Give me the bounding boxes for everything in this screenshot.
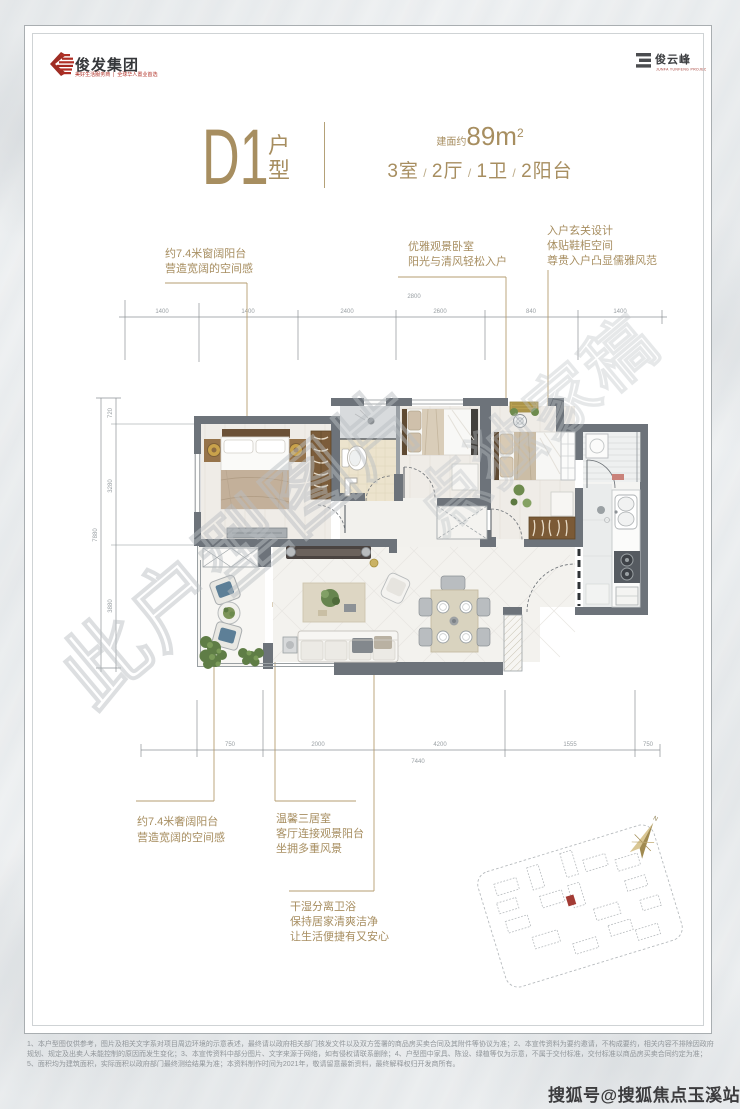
svg-text:1400: 1400 (155, 309, 169, 315)
svg-text:1400: 1400 (241, 309, 255, 315)
svg-text:750: 750 (643, 742, 654, 748)
svg-text:2600: 2600 (433, 309, 447, 315)
svg-text:2000: 2000 (311, 742, 325, 748)
svg-text:N: N (652, 816, 659, 823)
svg-text:720: 720 (108, 407, 114, 418)
svg-text:2800: 2800 (407, 294, 421, 300)
svg-text:3280: 3280 (108, 479, 114, 493)
svg-text:2400: 2400 (340, 309, 354, 315)
svg-text:840: 840 (526, 309, 537, 315)
svg-text:1555: 1555 (563, 742, 577, 748)
svg-text:750: 750 (225, 742, 236, 748)
svg-text:7440: 7440 (411, 759, 425, 765)
svg-text:4200: 4200 (433, 742, 447, 748)
svg-text:7880: 7880 (93, 528, 99, 542)
